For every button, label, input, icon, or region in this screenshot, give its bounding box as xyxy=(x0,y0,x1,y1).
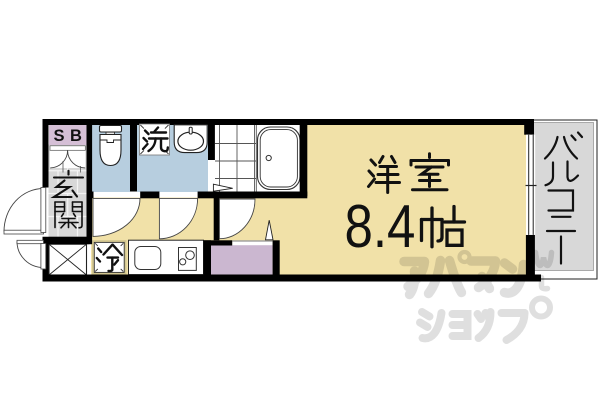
svg-text:S: S xyxy=(53,127,64,145)
svg-text:B: B xyxy=(70,127,82,145)
svg-text:8.4: 8.4 xyxy=(345,193,416,260)
